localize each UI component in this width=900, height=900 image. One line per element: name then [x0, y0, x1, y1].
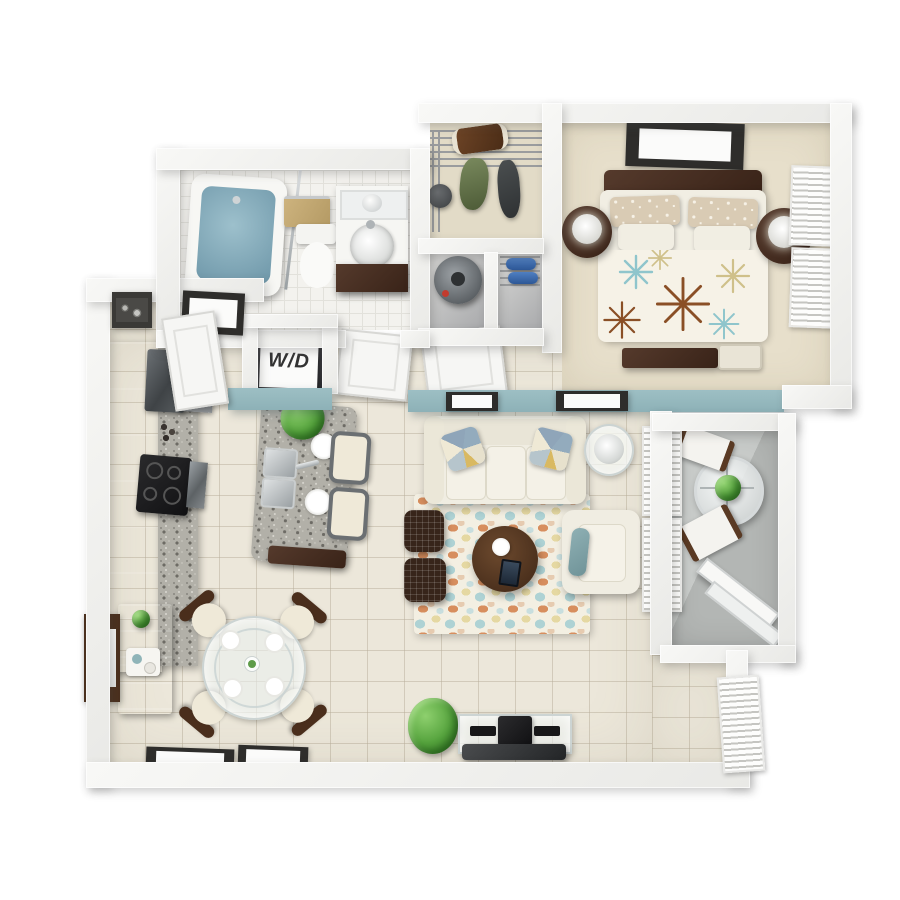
- dining-corner-floor: [652, 655, 728, 764]
- sideboard-tray: [126, 648, 160, 676]
- closet-utility-divider-wall: [418, 238, 544, 254]
- tv-plant: [408, 698, 458, 754]
- sofa: [424, 416, 586, 504]
- west-exterior-wall: [86, 278, 110, 786]
- bathroom-north-wall: [156, 148, 430, 170]
- sideboard-plant: [132, 610, 150, 628]
- laundry-north-wall: [242, 314, 338, 328]
- place-setting-3: [224, 680, 241, 697]
- accent-wall-frame-1: [446, 392, 498, 411]
- dining-table: [202, 616, 306, 720]
- burner-1: [146, 461, 164, 479]
- north-exterior-wall: [418, 103, 852, 123]
- accent-wall-kitchen: [228, 388, 332, 410]
- utility-divider-wall: [484, 252, 498, 336]
- vanity: [336, 186, 408, 292]
- side-table: [584, 424, 634, 476]
- wd-text: W/D: [268, 349, 311, 373]
- sink-faucet: [366, 220, 375, 229]
- bedroom-south-wall-east: [782, 385, 852, 409]
- water-heater-valve: [442, 290, 449, 297]
- water-heater: [434, 256, 482, 304]
- sofa-arm-right: [566, 416, 586, 504]
- accent-frame-2-art: [564, 394, 620, 407]
- closet-wire-vertical: [432, 132, 444, 232]
- coffee-table: [472, 526, 538, 592]
- vessel-sink: [350, 224, 394, 268]
- sideboard-cup-1: [132, 654, 142, 664]
- living-east-wall: [650, 411, 672, 655]
- balcony-east-wall: [778, 413, 796, 663]
- laundry-west-wall: [242, 320, 258, 394]
- bed-pillow-back-right: [687, 197, 758, 229]
- water-heater-vent: [451, 272, 465, 286]
- lamp-left: [572, 214, 602, 244]
- patio-plant: [715, 475, 741, 501]
- toilet-tank: [296, 224, 336, 244]
- side-table-lamp: [594, 434, 624, 464]
- vanity-mirror: [340, 190, 408, 220]
- accent-frame-1-art: [452, 395, 493, 408]
- burner-2: [167, 465, 182, 480]
- burner-3: [143, 486, 158, 501]
- bedroom-bench: [718, 344, 762, 370]
- tv-console-base: [462, 744, 566, 760]
- toilet-bowl: [300, 242, 334, 288]
- niche-gears: [116, 298, 147, 322]
- tv-speaker-right: [534, 726, 560, 736]
- kitchen-island: [251, 401, 358, 567]
- bar-stool-2: [326, 487, 370, 542]
- towel-bar: [284, 196, 330, 227]
- sideboard: [118, 604, 172, 714]
- shoes-blue-pair-1: [506, 258, 536, 270]
- centerpiece-sprig: [248, 660, 256, 668]
- bedroom-dresser: [622, 348, 718, 368]
- bed-pillow-back-left: [609, 195, 680, 227]
- coffee-table-tablet: [498, 559, 521, 588]
- south-exterior-wall: [86, 762, 750, 788]
- hat: [428, 184, 452, 208]
- bedroom-east-wall: [830, 103, 852, 409]
- toilet: [296, 224, 336, 290]
- entry-niche-art: [112, 292, 152, 328]
- accent-wall-frame-2: [556, 391, 628, 411]
- bathroom-door-jamb: [400, 330, 430, 348]
- vanity-cabinet: [336, 264, 408, 292]
- dining-window-blinds: [717, 675, 766, 774]
- place-setting-1: [222, 632, 239, 649]
- place-setting-2: [266, 634, 283, 651]
- ottoman-2: [404, 558, 446, 602]
- bed-duvet: [598, 250, 768, 342]
- burner-4: [162, 486, 182, 506]
- closet-bedroom-divider-wall: [542, 103, 562, 353]
- counter-decor: [158, 420, 180, 446]
- floor-plan: W/D: [0, 0, 900, 900]
- island-sink-basin-1: [262, 447, 298, 479]
- bed-pillow-front-right: [694, 226, 750, 252]
- balcony-north-wall: [652, 413, 796, 431]
- bar-stool-1: [328, 431, 372, 486]
- bedroom-wall-art: [625, 120, 745, 170]
- bedroom-art-canvas: [638, 128, 731, 162]
- tv-speaker-left: [470, 726, 496, 736]
- mirror-reflection: [362, 194, 382, 212]
- sofa-arm-left: [424, 416, 444, 504]
- shoes-blue-pair-2: [508, 272, 538, 284]
- coffee-table-bowl: [492, 538, 510, 556]
- island-faucet: [295, 459, 319, 470]
- cooktop: [136, 454, 193, 516]
- sideboard-cup-2: [144, 662, 156, 674]
- utility-south-wall: [418, 328, 544, 346]
- laundry-east-wall: [322, 320, 338, 394]
- ottoman-1: [404, 510, 444, 552]
- tv-panel: [498, 716, 532, 746]
- armchair: [562, 510, 640, 594]
- sofa-cushion-2: [486, 446, 526, 500]
- place-setting-4: [266, 678, 283, 695]
- island-sink-basin-2: [260, 477, 296, 509]
- bed-pillow-front-left: [618, 224, 674, 250]
